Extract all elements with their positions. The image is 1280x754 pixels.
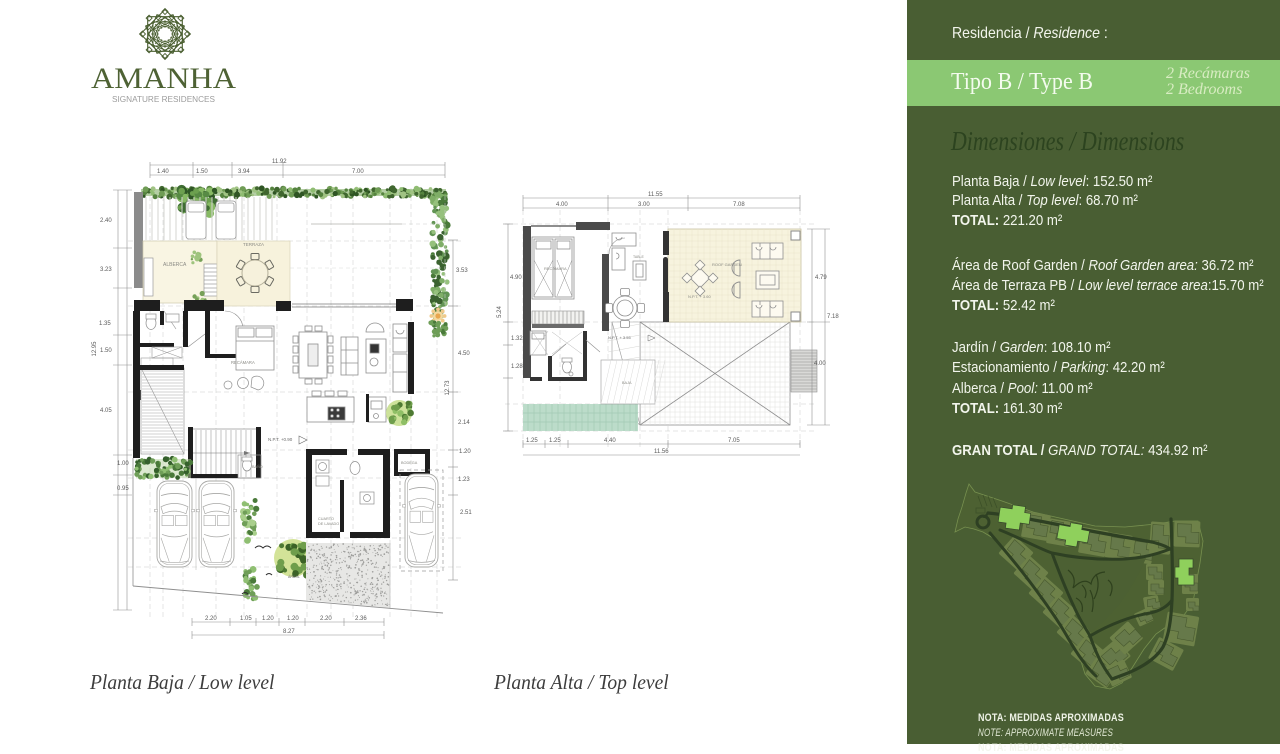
svg-text:1.28: 1.28: [511, 364, 523, 370]
svg-text:12.73: 12.73: [445, 380, 451, 396]
svg-text:1.40: 1.40: [157, 169, 169, 175]
svg-text:TERRAZA: TERRAZA: [243, 242, 264, 247]
svg-text:11.92: 11.92: [272, 159, 287, 165]
svg-text:3.23: 3.23: [100, 267, 112, 273]
svg-text:AMANHA: AMANHA: [91, 62, 236, 95]
svg-text:1.35: 1.35: [99, 321, 111, 327]
svg-text:4.90: 4.90: [510, 275, 522, 281]
svg-text:7.08: 7.08: [733, 202, 745, 208]
svg-text:7.18: 7.18: [827, 314, 839, 320]
svg-text:1.20: 1.20: [287, 616, 299, 622]
svg-text:2.51: 2.51: [460, 510, 472, 516]
svg-text:8.27: 8.27: [283, 629, 295, 635]
svg-text:RECÁMARA: RECÁMARA: [544, 266, 567, 271]
svg-text:CUARTO: CUARTO: [318, 517, 334, 521]
svg-text:2.20: 2.20: [205, 616, 217, 622]
svg-text:1.00: 1.00: [117, 461, 129, 467]
svg-text:7.00: 7.00: [352, 169, 364, 175]
svg-text:1.32: 1.32: [511, 336, 523, 342]
svg-text:7.05: 7.05: [728, 438, 740, 444]
svg-text:ALBERCA: ALBERCA: [163, 262, 187, 268]
svg-text:4.50: 4.50: [458, 351, 470, 357]
svg-text:4.00: 4.00: [814, 361, 826, 367]
svg-text:1.20: 1.20: [262, 616, 274, 622]
svg-text:N.P.T. + 3.60: N.P.T. + 3.60: [688, 294, 711, 299]
svg-text:SIGNATURE RESIDENCES: SIGNATURE RESIDENCES: [112, 95, 215, 104]
svg-text:3.00: 3.00: [638, 202, 650, 208]
svg-text:DE LAVADO: DE LAVADO: [318, 522, 339, 526]
svg-text:N.P.T. + 3.55: N.P.T. + 3.55: [608, 335, 631, 340]
svg-text:1.25: 1.25: [526, 438, 538, 444]
svg-text:3.53: 3.53: [456, 268, 468, 274]
svg-text:RECÁMARA: RECÁMARA: [231, 360, 255, 365]
svg-text:N.P.T. +0.90: N.P.T. +0.90: [268, 437, 293, 442]
svg-text:4.40: 4.40: [604, 438, 616, 444]
svg-text:4.00: 4.00: [556, 202, 568, 208]
svg-text:2.40: 2.40: [100, 218, 112, 224]
svg-text:2.14: 2.14: [458, 420, 470, 426]
svg-text:3.94: 3.94: [238, 169, 250, 175]
svg-text:2.36: 2.36: [355, 616, 367, 622]
svg-text:1.05: 1.05: [240, 616, 252, 622]
svg-text:11.56: 11.56: [654, 449, 669, 455]
svg-text:ÁRBOL: ÁRBOL: [288, 575, 300, 579]
svg-text:11.55: 11.55: [648, 192, 663, 198]
svg-text:0.95: 0.95: [117, 486, 129, 492]
svg-text:1.50: 1.50: [196, 169, 208, 175]
svg-text:BAÑO: BAÑO: [252, 464, 263, 469]
svg-text:2.20: 2.20: [320, 616, 332, 622]
svg-text:1.25: 1.25: [549, 438, 561, 444]
svg-text:TABLE: TABLE: [633, 255, 644, 259]
svg-text:5.24: 5.24: [497, 306, 503, 318]
svg-text:4.05: 4.05: [100, 408, 112, 414]
svg-text:BODEGA: BODEGA: [401, 461, 418, 465]
svg-text:1.50: 1.50: [100, 348, 112, 354]
svg-text:4.79: 4.79: [815, 275, 827, 281]
svg-text:ROOF GARDEN: ROOF GARDEN: [712, 262, 742, 267]
svg-text:1.23: 1.23: [458, 477, 470, 483]
svg-text:1.20: 1.20: [459, 449, 471, 455]
svg-text:BAJA: BAJA: [622, 381, 632, 385]
svg-text:12.95: 12.95: [92, 341, 98, 357]
